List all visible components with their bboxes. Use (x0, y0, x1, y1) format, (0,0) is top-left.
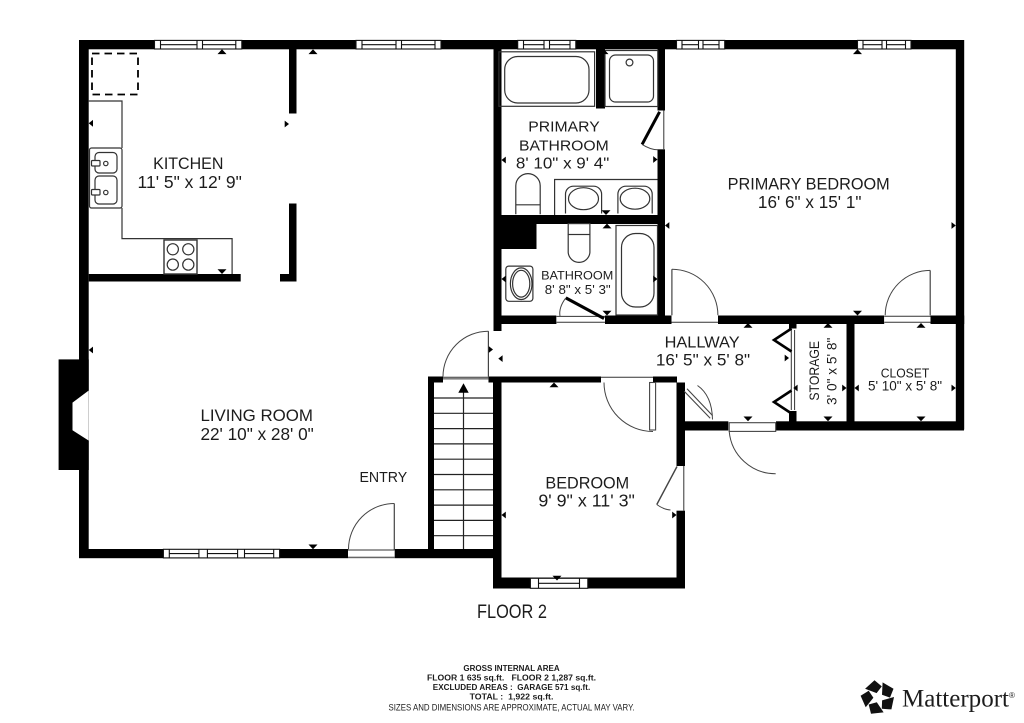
svg-text:SIZES AND DIMENSIONS ARE APPRO: SIZES AND DIMENSIONS ARE APPROXIMATE, AC… (389, 703, 635, 713)
svg-text:BATHROOM: BATHROOM (519, 138, 609, 154)
svg-text:FLOOR 1 635 sq.ft. FLOOR 2 1: FLOOR 1 635 sq.ft. FLOOR 2 1,287 sq.ft. (427, 673, 596, 683)
svg-text:PRIMARY BEDROOM: PRIMARY BEDROOM (728, 176, 890, 194)
svg-text:BATHROOM: BATHROOM (541, 269, 613, 283)
svg-text:16' 5" x 5' 8": 16' 5" x 5' 8" (656, 351, 750, 370)
svg-text:®: ® (1009, 691, 1015, 700)
svg-text:PRIMARY: PRIMARY (528, 120, 600, 136)
svg-text:STORAGE: STORAGE (806, 341, 822, 401)
svg-text:9' 9" x 11' 3": 9' 9" x 11' 3" (538, 491, 635, 511)
svg-text:KITCHEN: KITCHEN (153, 155, 223, 173)
svg-text:TOTAL : 1,922 sq.ft.: TOTAL : 1,922 sq.ft. (470, 692, 554, 702)
svg-text:GROSS INTERNAL AREA: GROSS INTERNAL AREA (463, 663, 559, 673)
svg-text:11' 5" x 12' 9": 11' 5" x 12' 9" (138, 172, 242, 192)
svg-text:Matterport: Matterport (902, 686, 1009, 713)
svg-text:HALLWAY: HALLWAY (665, 334, 740, 351)
svg-text:EXCLUDED AREAS : GARAGE 571 s: EXCLUDED AREAS : GARAGE 571 sq.ft. (433, 682, 590, 692)
svg-text:3' 0" x 5' 8": 3' 0" x 5' 8" (824, 338, 840, 405)
svg-text:LIVING ROOM: LIVING ROOM (200, 406, 313, 425)
svg-text:16' 6" x 15' 1": 16' 6" x 15' 1" (758, 193, 862, 212)
svg-text:8' 8" x 5' 3": 8' 8" x 5' 3" (545, 282, 611, 297)
svg-text:ENTRY: ENTRY (359, 470, 407, 486)
svg-text:8' 10" x 9' 4": 8' 10" x 9' 4" (516, 156, 609, 173)
svg-text:5' 10" x 5' 8": 5' 10" x 5' 8" (868, 379, 942, 394)
svg-text:FLOOR 2: FLOOR 2 (477, 602, 547, 623)
svg-text:22' 10" x 28' 0": 22' 10" x 28' 0" (200, 424, 313, 444)
